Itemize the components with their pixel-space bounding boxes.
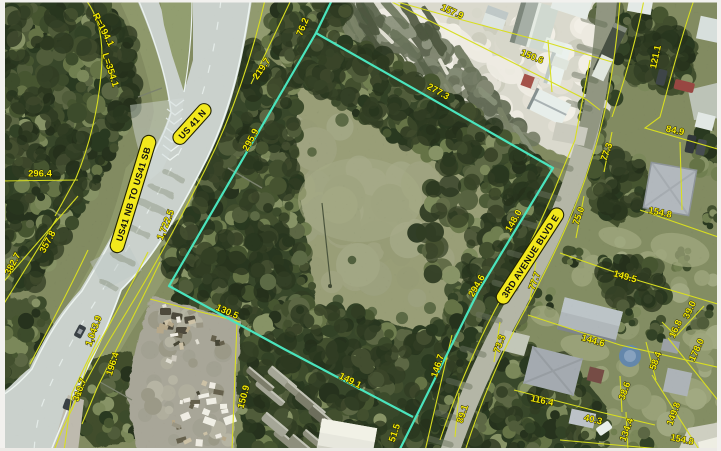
svg-text:296.4: 296.4 (28, 169, 52, 180)
